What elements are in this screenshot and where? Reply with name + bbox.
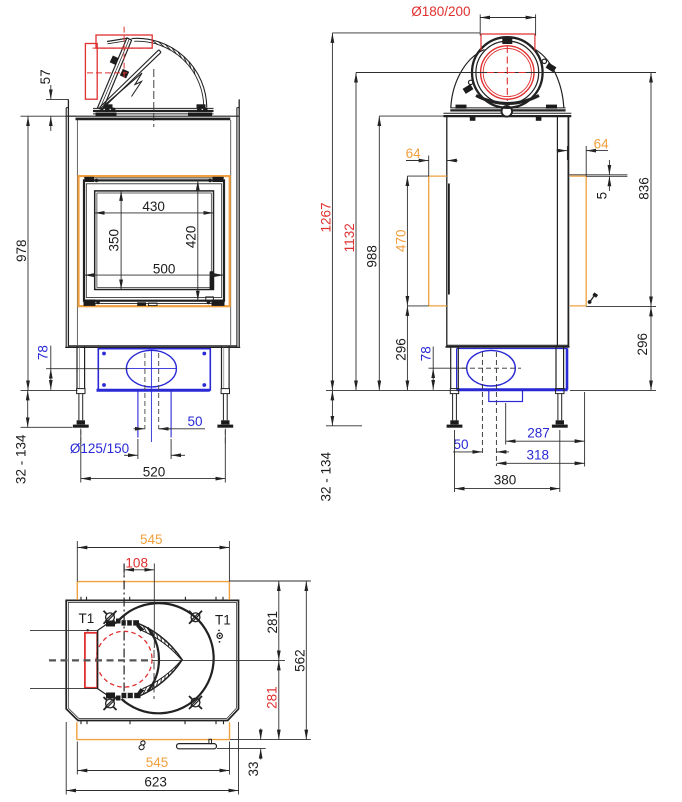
svg-text:287: 287: [527, 426, 550, 441]
svg-text:5: 5: [595, 192, 610, 200]
svg-text:296: 296: [635, 333, 650, 356]
svg-text:1132: 1132: [342, 223, 357, 252]
svg-text:50: 50: [453, 437, 468, 452]
svg-text:T1: T1: [79, 611, 95, 626]
svg-text:836: 836: [637, 177, 652, 200]
svg-text:32 - 134: 32 - 134: [318, 451, 333, 501]
svg-text:57: 57: [38, 69, 53, 84]
svg-text:380: 380: [494, 472, 517, 487]
svg-text:64: 64: [594, 136, 610, 151]
svg-text:430: 430: [142, 199, 165, 214]
svg-text:T1: T1: [215, 613, 231, 628]
svg-text:281: 281: [264, 686, 279, 709]
svg-text:988: 988: [365, 245, 380, 268]
svg-text:108: 108: [125, 555, 148, 570]
svg-text:281: 281: [265, 611, 280, 634]
svg-text:78: 78: [35, 345, 50, 360]
svg-text:318: 318: [527, 448, 550, 463]
svg-text:545: 545: [140, 532, 163, 547]
svg-text:500: 500: [153, 262, 176, 277]
svg-text:520: 520: [143, 465, 166, 480]
svg-text:Ø180/200: Ø180/200: [411, 4, 470, 19]
svg-text:470: 470: [393, 229, 408, 252]
svg-text:50: 50: [187, 414, 202, 429]
svg-text:623: 623: [144, 775, 167, 790]
svg-text:32 - 134: 32 - 134: [13, 434, 28, 484]
svg-text:78: 78: [418, 346, 433, 361]
svg-text:978: 978: [14, 239, 29, 262]
svg-text:64: 64: [406, 146, 422, 161]
svg-text:545: 545: [146, 755, 169, 770]
svg-text:420: 420: [183, 226, 198, 249]
svg-text:33: 33: [246, 761, 261, 776]
svg-text:Ø125/150: Ø125/150: [70, 441, 129, 456]
svg-text:562: 562: [292, 649, 307, 672]
svg-text:350: 350: [107, 229, 122, 252]
svg-text:1267: 1267: [318, 202, 333, 232]
svg-text:296: 296: [393, 338, 408, 361]
